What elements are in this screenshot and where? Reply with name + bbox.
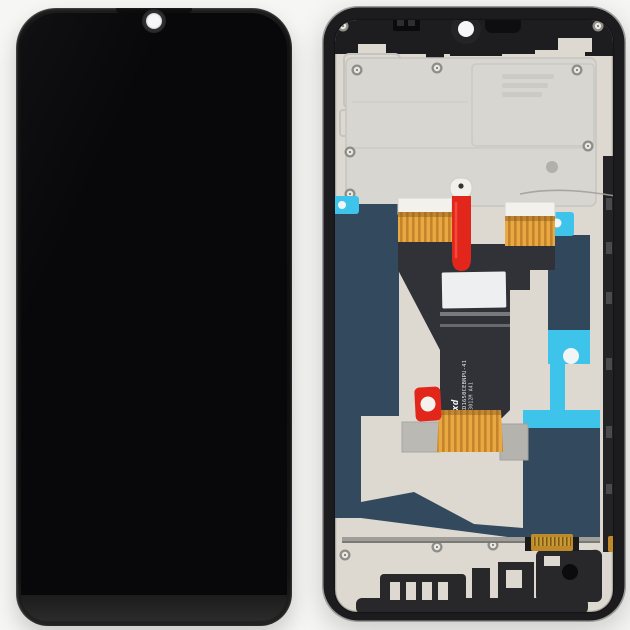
flex-connector-left [398,198,452,242]
connector-pins [533,537,571,546]
blank-flex-label [442,271,507,308]
sticker-hole [338,201,346,209]
metal-bracket-right [500,424,528,460]
red-round-sticker [414,386,442,421]
front-screen [21,13,287,621]
camera-hole [458,21,474,37]
sticker-part-number: TXD1650CEBNPU-41 [462,360,468,416]
red-pull-tab [450,178,472,271]
back-assembly-graphic: Txd TXD1650CEBNPU-41 JB3012M A41 [322,6,626,622]
selfie-camera-hole [146,13,162,29]
mic-pad-dot [546,161,558,173]
product-photo: Txd TXD1650CEBNPU-41 JB3012M A41 [0,0,630,630]
flex-fold-line [440,324,510,327]
bottom-bezel [21,595,287,621]
pull-tab-hole [458,183,463,188]
charging-port-connector [525,534,579,551]
flex-fold-line [440,312,510,316]
metal-bracket-left [402,422,440,452]
orange-ribbon-cable [437,410,503,452]
lcd-back-assembly: Txd TXD1650CEBNPU-41 JB3012M A41 [322,6,626,622]
lcd-front-panel [16,8,292,626]
flex-connector-right [505,202,555,246]
speaker-hole [562,564,578,580]
sticker-hole [563,348,579,364]
